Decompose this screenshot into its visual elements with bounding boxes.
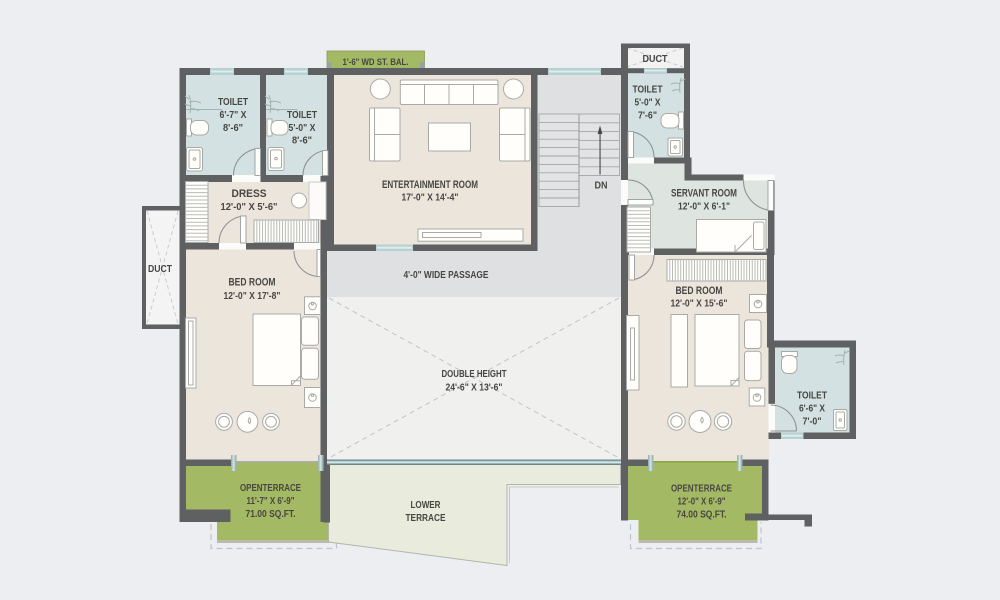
- svg-text:12'-0" X 15'-6": 12'-0" X 15'-6": [671, 299, 728, 310]
- svg-text:8'-6": 8'-6": [223, 123, 243, 134]
- svg-text:4'-0" WIDE PASSAGE: 4'-0" WIDE PASSAGE: [404, 270, 489, 281]
- svg-text:74.00 SQ.FT.: 74.00 SQ.FT.: [677, 510, 727, 521]
- svg-text:71.00 SQ.FT.: 71.00 SQ.FT.: [246, 509, 296, 520]
- svg-text:6'-6" X: 6'-6" X: [799, 404, 825, 415]
- svg-text:DRESS: DRESS: [232, 188, 267, 200]
- svg-text:BED ROOM: BED ROOM: [676, 285, 723, 297]
- svg-text:DUCT: DUCT: [148, 264, 172, 275]
- svg-text:24'-6" X 13'-6": 24'-6" X 13'-6": [446, 383, 503, 394]
- svg-text:17'-0" X 14'-4": 17'-0" X 14'-4": [402, 193, 459, 204]
- svg-text:12'-0" X 6'-1": 12'-0" X 6'-1": [678, 202, 730, 213]
- svg-text:TERRACE: TERRACE: [406, 513, 446, 524]
- svg-text:OPENTERRACE: OPENTERRACE: [240, 483, 301, 494]
- svg-text:TOILET: TOILET: [633, 85, 663, 96]
- svg-text:7'-0": 7'-0": [803, 417, 822, 428]
- svg-text:5'-0" X: 5'-0" X: [289, 123, 316, 134]
- svg-text:12'-0" X 5'-6": 12'-0" X 5'-6": [221, 202, 278, 213]
- svg-text:DN: DN: [595, 181, 608, 192]
- svg-text:12'-0" X 17'-8": 12'-0" X 17'-8": [224, 291, 281, 302]
- svg-text:LOWER: LOWER: [411, 500, 442, 511]
- svg-text:SERVANT ROOM: SERVANT ROOM: [671, 188, 737, 200]
- svg-text:TOILET: TOILET: [218, 97, 248, 108]
- svg-text:DOUBLE HEIGHT: DOUBLE HEIGHT: [442, 369, 507, 380]
- svg-text:6'-7" X: 6'-7" X: [220, 110, 247, 121]
- svg-text:12'-0" X 6'-9": 12'-0" X 6'-9": [678, 497, 726, 508]
- svg-text:ENTERTAINMENT ROOM: ENTERTAINMENT ROOM: [382, 179, 478, 191]
- svg-text:1'-6" WD ST. BAL.: 1'-6" WD ST. BAL.: [343, 57, 409, 67]
- svg-text:5'-0" X: 5'-0" X: [635, 98, 661, 109]
- svg-text:7'-6": 7'-6": [638, 111, 657, 122]
- svg-text:DUCT: DUCT: [643, 54, 668, 65]
- svg-text:TOILET: TOILET: [287, 110, 317, 121]
- svg-text:OPENTERRACE: OPENTERRACE: [671, 484, 732, 495]
- svg-text:BED ROOM: BED ROOM: [229, 277, 276, 289]
- svg-text:8'-6": 8'-6": [292, 136, 312, 147]
- svg-text:11'-7" X 6'-9": 11'-7" X 6'-9": [247, 496, 295, 507]
- svg-text:TOILET: TOILET: [797, 391, 827, 402]
